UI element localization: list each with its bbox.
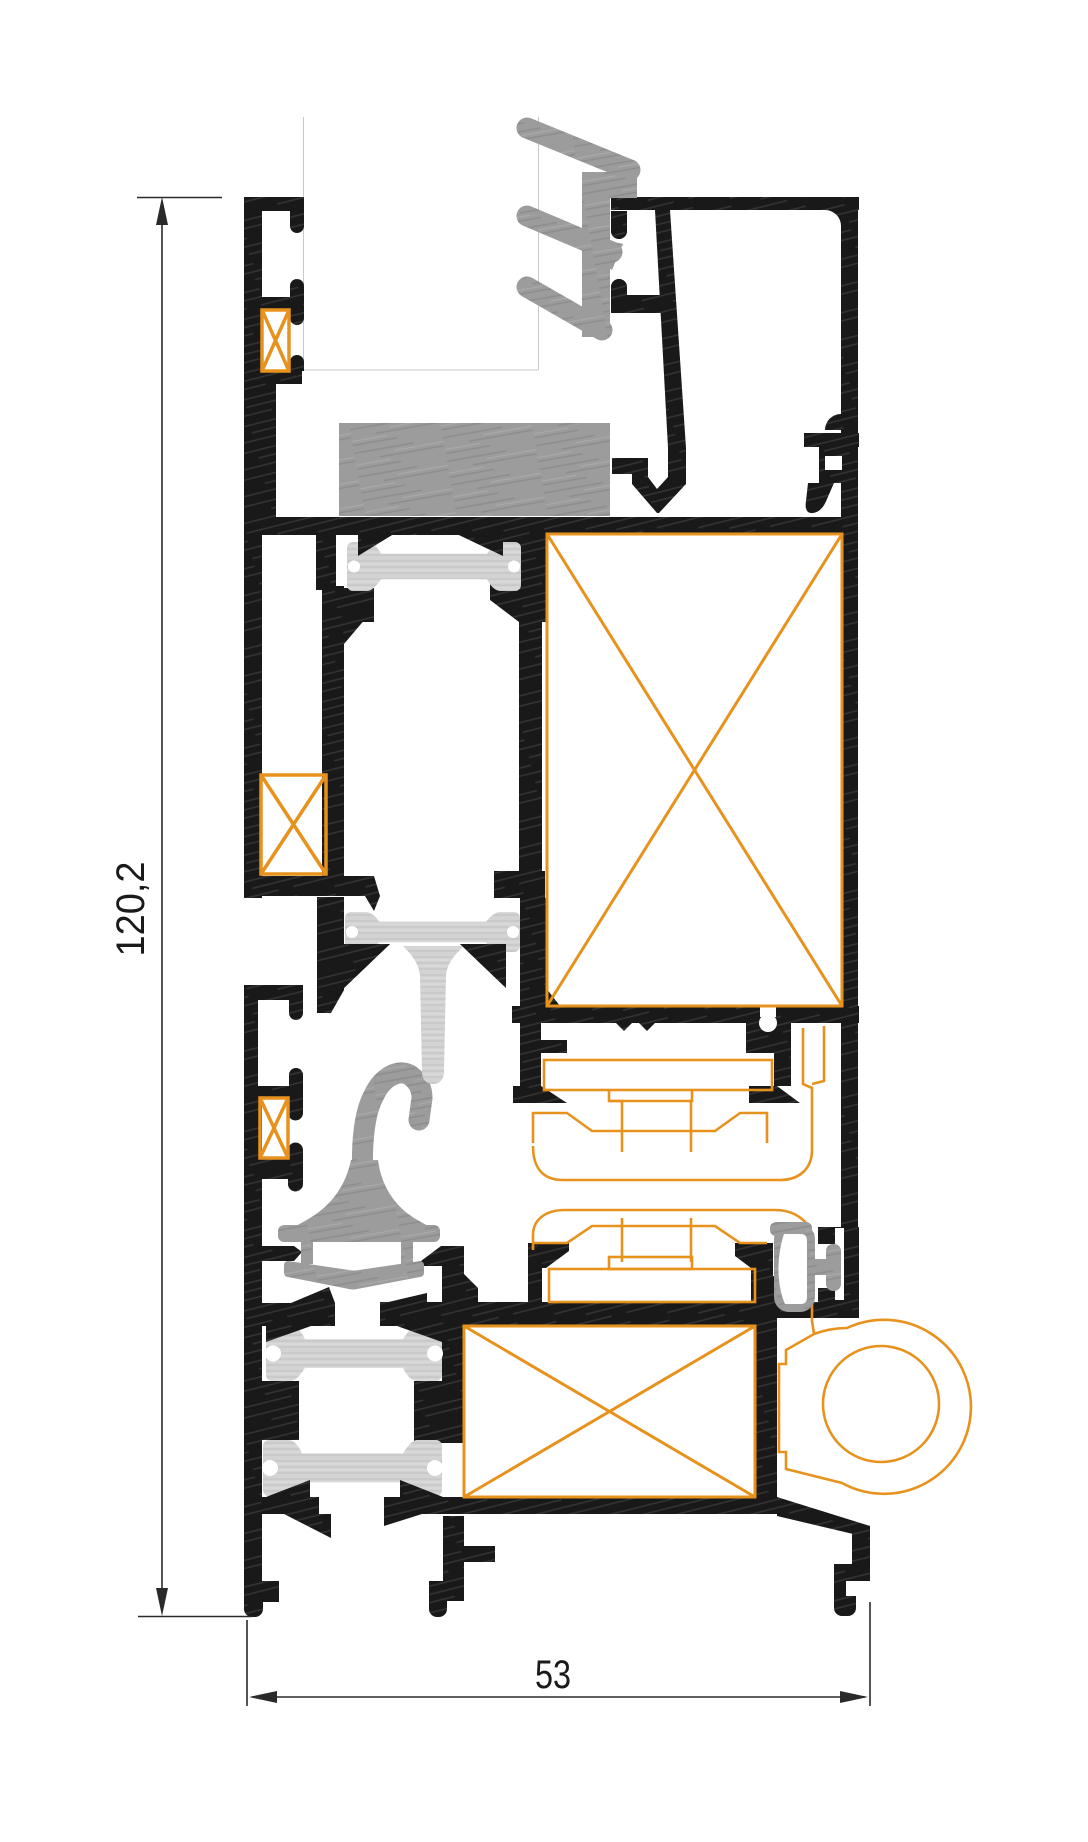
svg-text:53: 53 <box>535 1653 571 1697</box>
svg-text:120,2: 120,2 <box>109 862 153 957</box>
